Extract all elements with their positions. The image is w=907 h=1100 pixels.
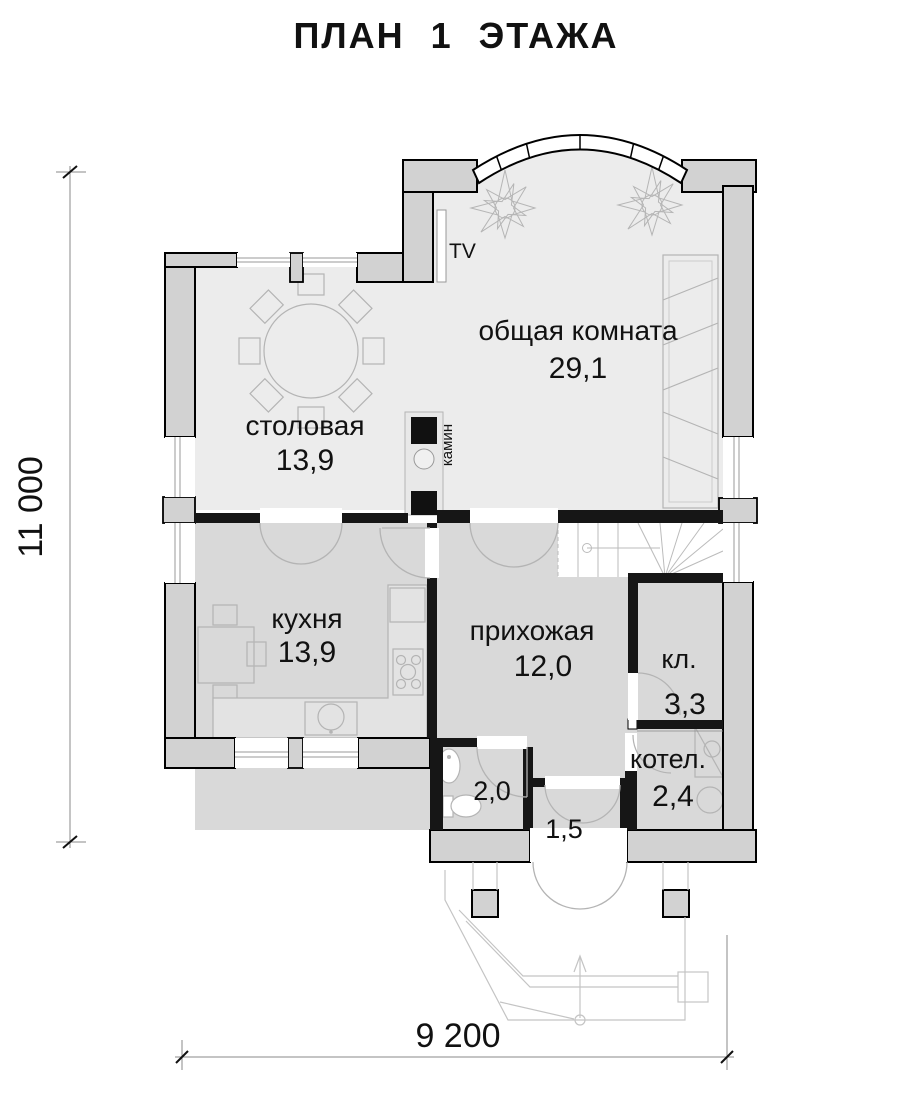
room-label-hall: прихожая bbox=[470, 615, 595, 646]
room-area-wc: 2,0 bbox=[473, 776, 511, 806]
floor-plan-page: ПЛАН 1 ЭТАЖА 11 000 9 200 общая комната … bbox=[0, 0, 907, 1100]
room-label-dining: столовая bbox=[246, 410, 365, 441]
room-label-kitchen: кухня bbox=[271, 603, 342, 634]
tv-unit bbox=[437, 210, 446, 282]
kitchen-bottom-wall bbox=[165, 738, 235, 768]
porch-column bbox=[472, 890, 498, 917]
dimension-width-label: 9 200 bbox=[415, 1017, 500, 1055]
window bbox=[303, 253, 357, 267]
dimension-height-label: 11 000 bbox=[12, 456, 50, 557]
room-area-living: 29,1 bbox=[549, 352, 607, 385]
room-area-dining: 13,9 bbox=[276, 444, 334, 477]
bottom-wall bbox=[430, 830, 530, 862]
room-label-boiler: котел. bbox=[630, 744, 706, 774]
window bbox=[723, 437, 753, 498]
room-label-closet: кл. bbox=[661, 644, 696, 674]
window bbox=[303, 738, 358, 768]
west-wall bbox=[165, 267, 195, 437]
porch-column bbox=[663, 890, 689, 917]
porch bbox=[445, 862, 708, 1025]
floor-plan-drawing: ПЛАН 1 ЭТАЖА 11 000 9 200 общая комната … bbox=[0, 0, 907, 1100]
tv-label: TV bbox=[449, 240, 476, 263]
window bbox=[235, 738, 288, 768]
window bbox=[165, 437, 195, 497]
window bbox=[723, 523, 753, 582]
window bbox=[237, 253, 290, 267]
room-area-closet: 3,3 bbox=[664, 688, 706, 721]
page-title: ПЛАН 1 ЭТАЖА bbox=[293, 15, 618, 56]
room-label-living: общая комната bbox=[478, 315, 677, 346]
fireplace-label: камин bbox=[439, 424, 456, 466]
window bbox=[165, 523, 195, 583]
room-area-boiler: 2,4 bbox=[652, 780, 694, 813]
room-area-vestibule: 1,5 bbox=[545, 814, 583, 844]
bay-wall-left bbox=[403, 160, 477, 192]
room-area-hall: 12,0 bbox=[514, 650, 572, 683]
east-wall bbox=[723, 186, 753, 437]
room-area-kitchen: 13,9 bbox=[278, 636, 336, 669]
fireplace bbox=[405, 412, 443, 515]
